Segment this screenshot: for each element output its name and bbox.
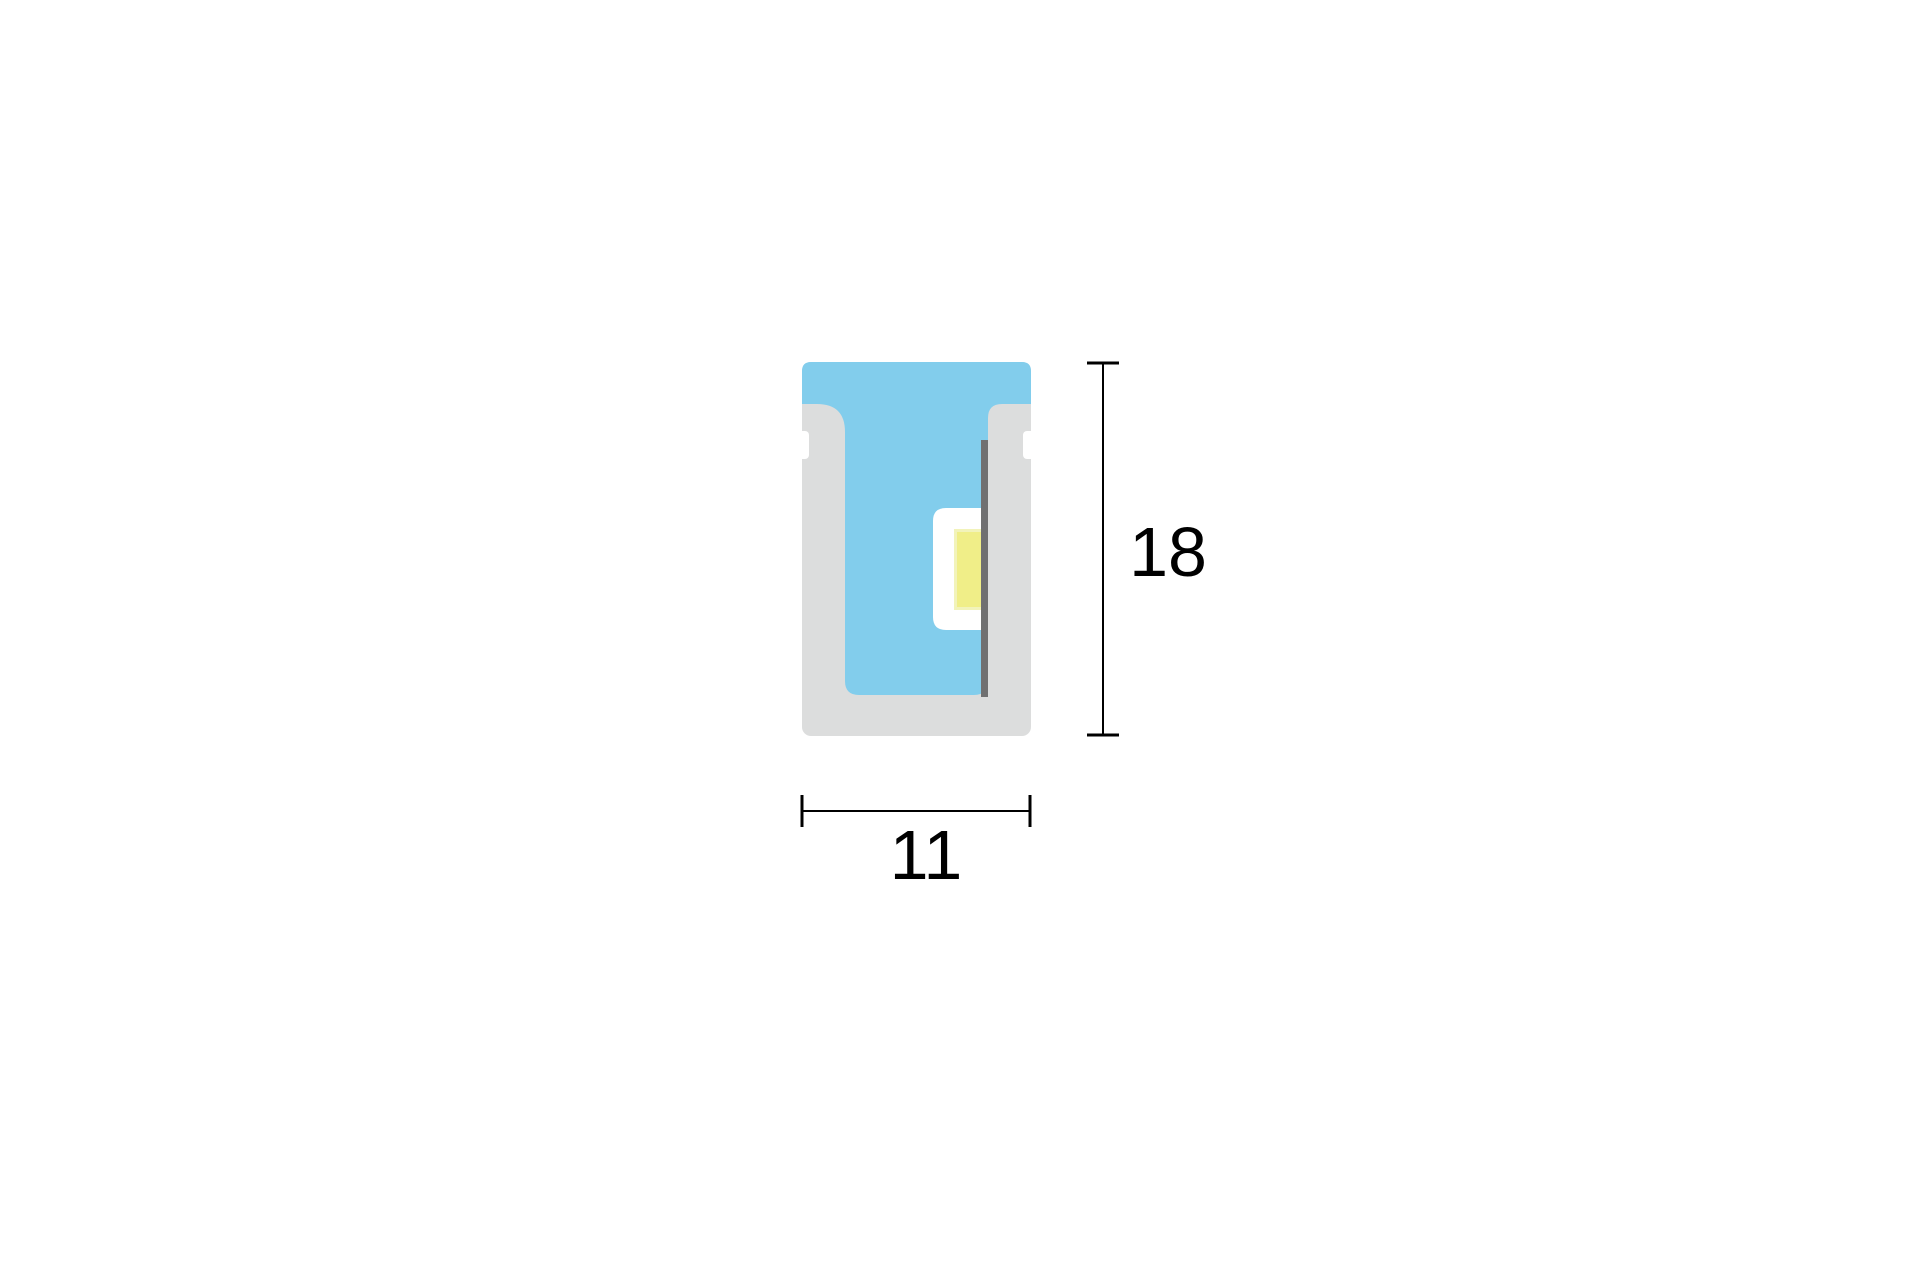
width-dimension-label: 11 (890, 816, 963, 894)
mounting-notch-right (1023, 431, 1039, 459)
width-dimension: 11 (802, 795, 1030, 894)
led-chip (957, 532, 981, 607)
height-dimension-label: 18 (1129, 513, 1207, 591)
height-dimension: 18 (1087, 363, 1207, 735)
cross-section-diagram: 18 11 (0, 0, 1920, 1263)
pcb-strip (981, 440, 988, 697)
mounting-notch-left (793, 431, 809, 459)
diagram-canvas: 18 11 (0, 0, 1920, 1263)
